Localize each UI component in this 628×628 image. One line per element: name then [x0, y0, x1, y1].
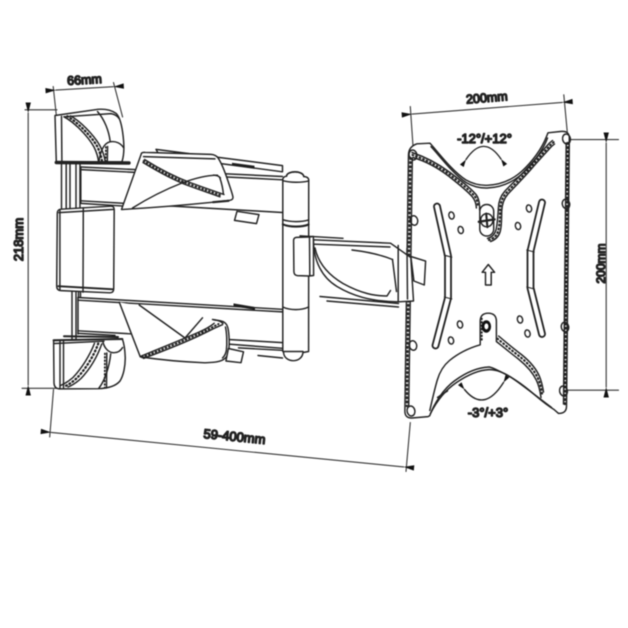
svg-text:200mm: 200mm — [465, 89, 508, 106]
svg-text:59-400mm: 59-400mm — [203, 426, 266, 447]
svg-text:200mm: 200mm — [594, 243, 608, 283]
svg-text:-12°/+12°: -12°/+12° — [457, 131, 512, 146]
svg-text:-3°/+3°: -3°/+3° — [468, 405, 508, 420]
svg-text:66mm: 66mm — [67, 72, 103, 88]
svg-text:218mm: 218mm — [11, 218, 26, 261]
